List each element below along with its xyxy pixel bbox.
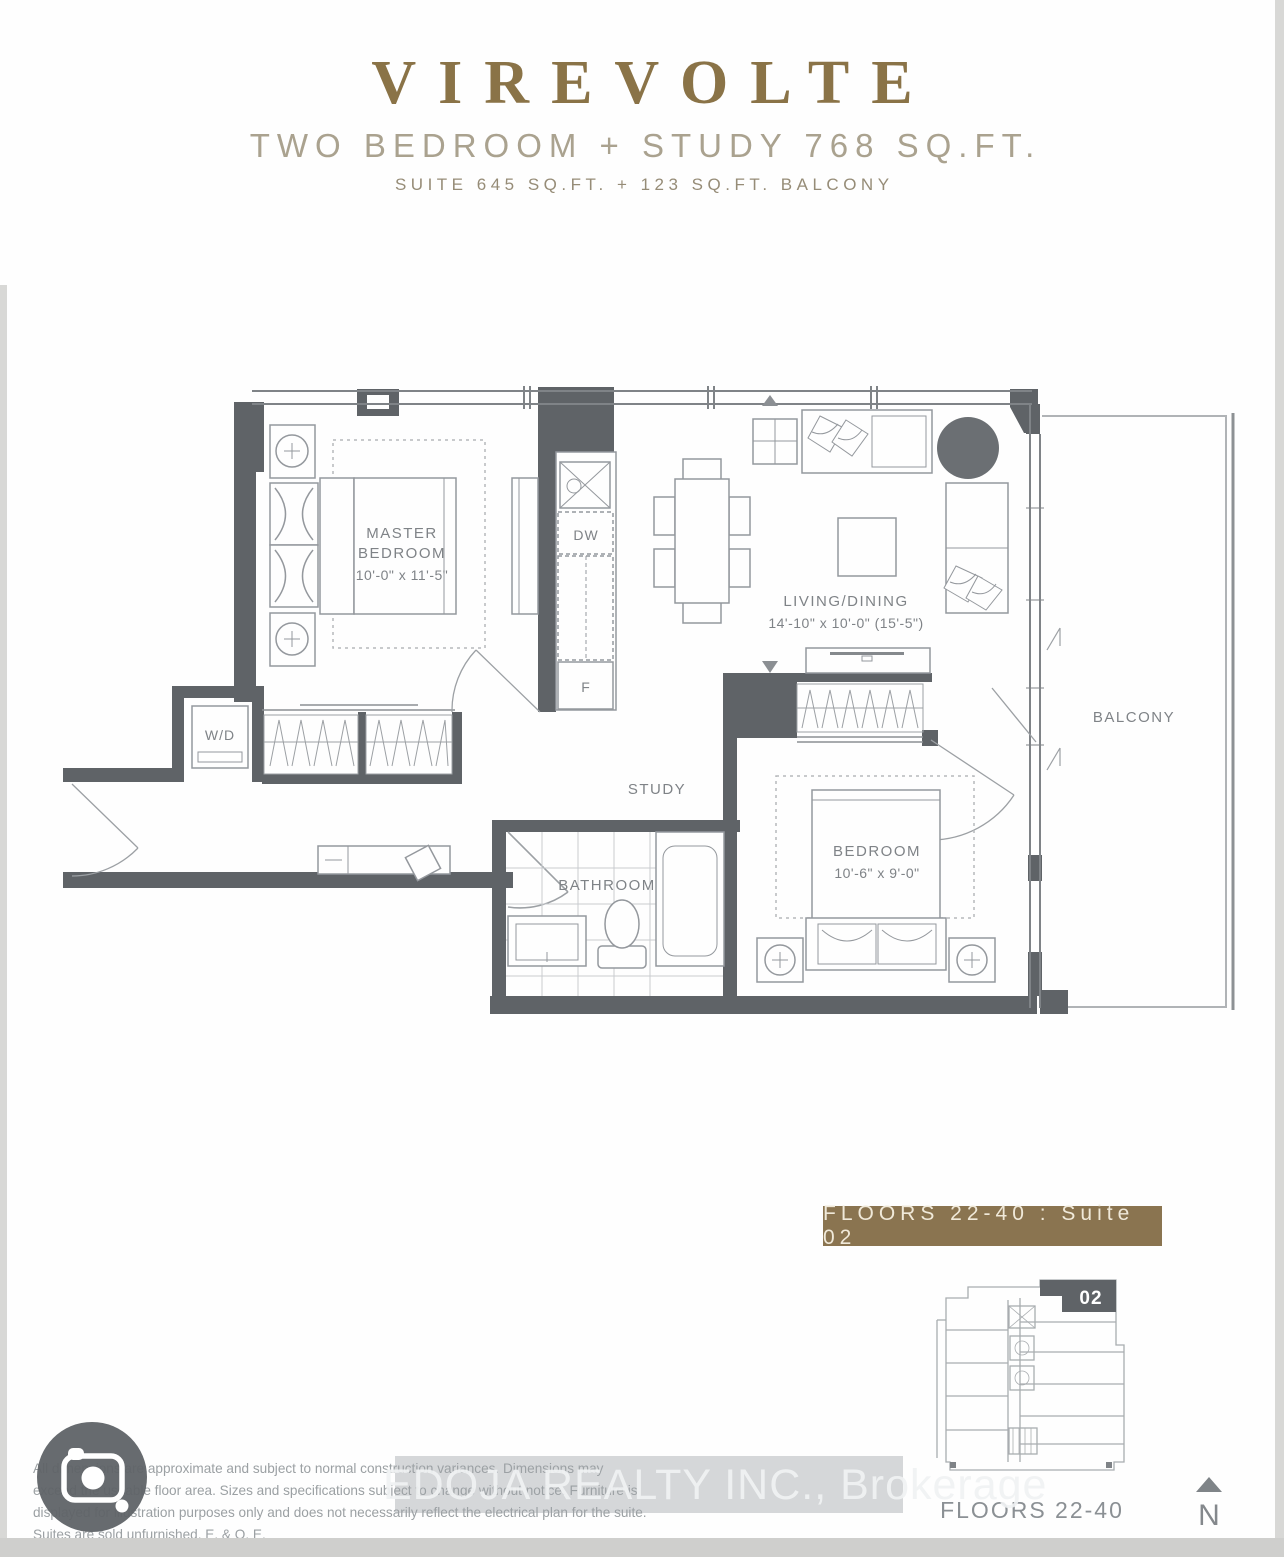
dishwasher-label: DW <box>573 527 598 543</box>
svg-text:10'-6" x 9'-0": 10'-6" x 9'-0" <box>834 865 919 881</box>
kitchen <box>556 452 616 710</box>
window-swing-marks <box>1047 628 1060 770</box>
balcony-label: BALCONY <box>1093 709 1175 726</box>
key-plan-suite-number: 02 <box>1079 1288 1102 1309</box>
north-label: N <box>1198 1499 1220 1532</box>
structural-column <box>937 417 999 479</box>
north-arrow-icon: N <box>1196 1477 1222 1532</box>
svg-text:LIVING/DINING: LIVING/DINING <box>783 593 908 610</box>
floorplan-page: VIREVOLTE TWO BEDROOM + STUDY 768 SQ.FT.… <box>0 0 1284 1557</box>
hall-closets <box>262 705 455 774</box>
floorplan-drawing: BALCONY <box>0 0 1284 1557</box>
living-dining-label: LIVING/DINING 14'-10" x 10'-0" (15'-5") <box>768 593 923 631</box>
svg-text:MASTER: MASTER <box>366 525 438 542</box>
key-plan-suite-highlight <box>1040 1280 1116 1312</box>
camera-icon <box>37 1422 147 1532</box>
svg-text:BEDROOM: BEDROOM <box>833 843 921 860</box>
svg-text:10'-0" x 11'-5": 10'-0" x 11'-5" <box>356 567 449 583</box>
bathroom-label: BATHROOM <box>558 877 656 894</box>
svg-text:BEDROOM: BEDROOM <box>358 545 446 562</box>
svg-text:14'-10" x 10'-0" (15'-5"): 14'-10" x 10'-0" (15'-5") <box>768 615 923 631</box>
study-label: STUDY <box>628 781 686 798</box>
photo-edges <box>0 0 1284 1557</box>
dining-set <box>654 459 750 623</box>
window-notch <box>367 395 389 409</box>
master-bedroom-label: MASTER BEDROOM 10'-0" x 11'-5" <box>356 525 449 583</box>
laundry-label: W/D <box>205 727 235 743</box>
floors-suite-banner: FLOORS 22-40 : Suite 02 <box>823 1206 1162 1246</box>
fridge-label: F <box>581 679 591 695</box>
bathroom: BATHROOM <box>506 832 724 996</box>
watermark-text: EDOJA REALTY INC., Brokerage <box>383 1461 943 1510</box>
